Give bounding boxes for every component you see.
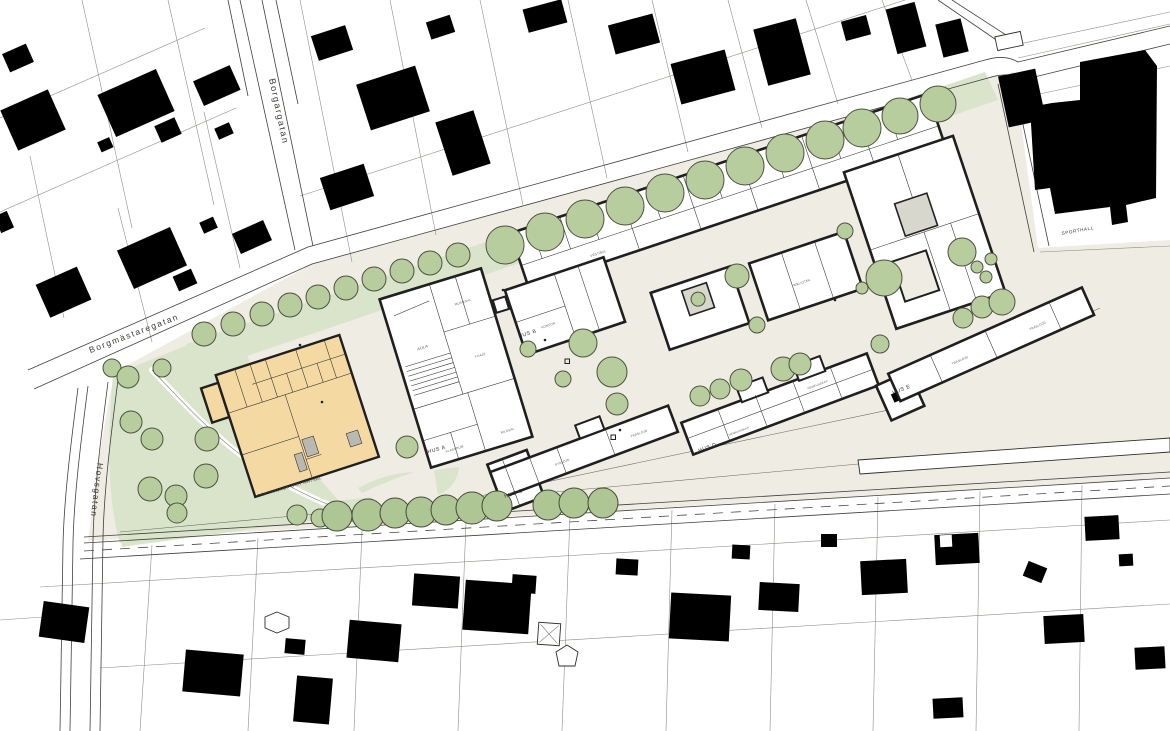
hexagon-house — [265, 612, 289, 633]
borgargatan-road — [228, 0, 313, 250]
pentagon-house — [556, 645, 578, 666]
building-label-sporthall: SPORTHALL — [1061, 225, 1094, 236]
street-label-borgargatan: Borgargatan — [267, 77, 291, 145]
site-plan: MUSIKSAL AULA FOAJÉ KLASSRUM BILDSAL VES… — [0, 0, 1170, 731]
site-plan-drawing: MUSIKSAL AULA FOAJÉ KLASSRUM BILDSAL VES… — [0, 0, 1170, 731]
sporthall-building — [1030, 50, 1157, 225]
